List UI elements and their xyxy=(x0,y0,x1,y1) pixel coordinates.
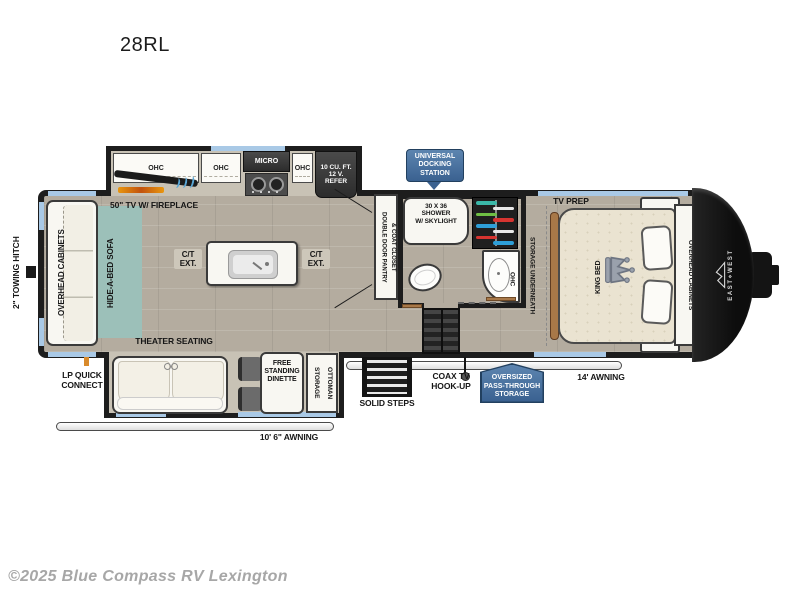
kitchen-island xyxy=(206,241,298,286)
towing-hitch-label: 2" TOWING HITCH xyxy=(12,212,22,334)
window-accent xyxy=(534,352,606,357)
microwave: MICRO xyxy=(243,151,290,172)
pillow-icon xyxy=(641,279,674,325)
pantry: DOUBLE DOOR PANTRY & COAT CLOSET xyxy=(374,194,398,300)
cooktop-icon xyxy=(245,173,288,196)
overhead-cabinet: OHC xyxy=(201,153,241,183)
basin-icon xyxy=(488,258,510,292)
shower: 30 X 36 SHOWER W/ SKYLIGHT xyxy=(403,197,469,245)
refer-label: 10 CU. FT. 12 V. REFER xyxy=(320,164,351,185)
micro-label: MICRO xyxy=(255,158,278,165)
tv-prep-label: TV PREP xyxy=(548,197,594,207)
solid-steps-icon xyxy=(362,357,412,397)
wood-trim xyxy=(402,304,422,308)
page-title: 28RL xyxy=(120,34,170,57)
dinette-chair-icon xyxy=(238,357,262,381)
ct-ext-right-label: C/T EXT. xyxy=(302,249,330,269)
overhead-cabinet: OHC xyxy=(292,153,313,183)
ottoman-label: STORAGE OTTOMAN xyxy=(310,358,334,408)
coax-label: COAX TV HOOK-UP xyxy=(422,372,480,392)
solid-steps-label: SOLID STEPS xyxy=(356,399,418,409)
dinette-chair-icon xyxy=(238,387,262,411)
sink-icon xyxy=(228,250,278,279)
pillow-icon xyxy=(641,225,674,271)
theater-seating-label: THEATER SEATING xyxy=(128,337,220,347)
crown-icon xyxy=(600,252,636,288)
rug xyxy=(94,206,142,338)
window-accent xyxy=(39,202,44,230)
rear-awning-bar xyxy=(56,422,334,431)
entry-steps-icon xyxy=(422,308,460,354)
badge-pointer xyxy=(427,182,441,190)
bath-ohc-label: OHC xyxy=(508,262,515,296)
brand-text: EAST⋄WEST xyxy=(727,249,734,301)
rear-awning-label: 10' 6" AWNING xyxy=(244,433,334,443)
window-accent xyxy=(39,318,44,346)
lp-connect-icon xyxy=(84,357,89,366)
king-bed-label: KING BED xyxy=(595,248,603,306)
watermark: ©2025 Blue Compass RV Lexington xyxy=(8,568,288,586)
tv-fireplace-icon xyxy=(114,170,204,200)
passthrough-badge-text: OVERSIZED PASS-THROUGH STORAGE xyxy=(484,374,540,399)
pantry-label: DOUBLE DOOR PANTRY & COAT CLOSET xyxy=(378,198,394,296)
ohc-label: OHC xyxy=(295,165,311,172)
dinette-table: FREE STANDING DINETTE xyxy=(260,352,304,414)
door-dash-line xyxy=(458,302,496,304)
window-accent xyxy=(48,191,96,196)
overhead-cabinets-label: OVERHEAD CABINETS xyxy=(57,212,66,334)
brand-logo: EAST⋄WEST xyxy=(711,215,737,335)
wood-trim xyxy=(486,297,516,301)
theater-seats-icon xyxy=(112,356,228,414)
docking-badge-text: UNIVERSAL DOCKING STATION xyxy=(415,153,455,178)
floorplan: 28RL OHC OHC MICRO OHC 10 CU. FT. 12 V. … xyxy=(0,0,800,600)
hide-a-bed-sofa-icon xyxy=(46,200,98,346)
universal-docking-badge: UNIVERSAL DOCKING STATION xyxy=(406,149,464,182)
wardrobe xyxy=(472,197,518,249)
storage-underneath-label: STORAGE UNDERNEATH xyxy=(528,228,535,324)
wardrobe-hangers xyxy=(476,201,514,245)
front-awning-label: 14' AWNING xyxy=(566,373,636,383)
storage-ottoman: STORAGE OTTOMAN xyxy=(306,353,338,413)
dinette-label: FREE STANDING DINETTE xyxy=(262,360,302,406)
window-accent xyxy=(211,146,285,151)
ohc-label: OHC xyxy=(213,165,229,172)
mountain-icon xyxy=(715,260,726,290)
shower-label: 30 X 36 SHOWER W/ SKYLIGHT xyxy=(406,203,466,239)
rear-hitch-icon xyxy=(26,266,36,278)
tv-fireplace-label: 50" TV W/ FIREPLACE xyxy=(110,201,222,211)
hitch-pin-icon xyxy=(770,265,779,285)
storage-dash-line xyxy=(546,206,547,346)
ct-ext-left-label: C/T EXT. xyxy=(174,249,202,269)
lp-quick-connect-label: LP QUICK CONNECT xyxy=(54,371,110,391)
hide-a-bed-label: HIDE-A-BED SOFA xyxy=(106,216,115,330)
